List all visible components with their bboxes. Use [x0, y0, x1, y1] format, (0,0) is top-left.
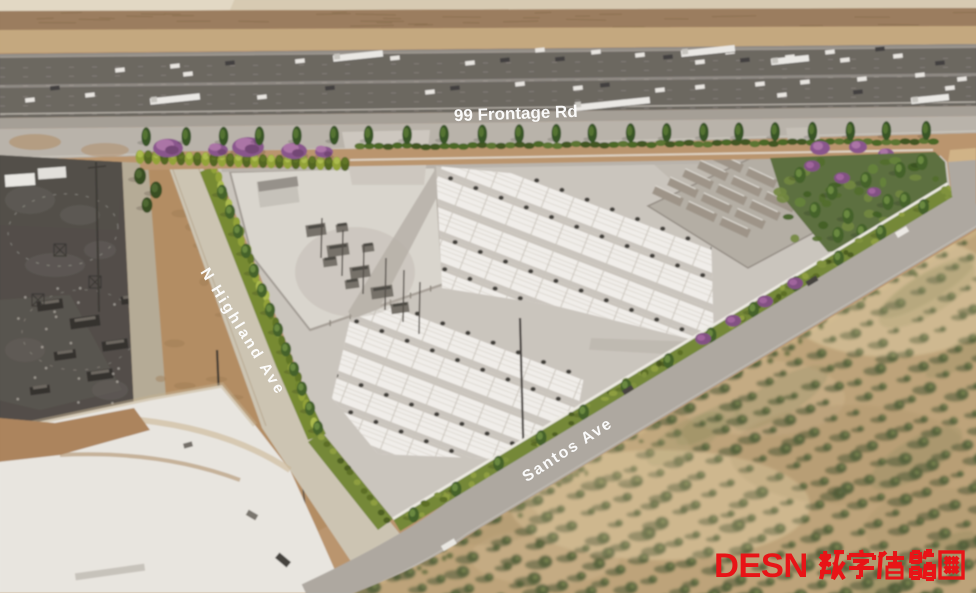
svg-text:DESN: DESN [714, 547, 808, 585]
